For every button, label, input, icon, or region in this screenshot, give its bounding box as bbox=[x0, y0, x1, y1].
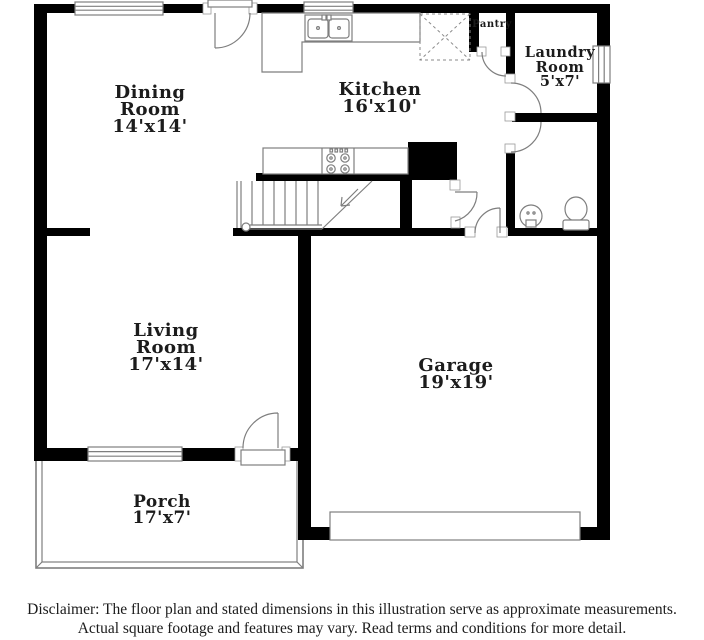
front-door-threshold bbox=[208, 0, 252, 7]
garage-entry-door bbox=[475, 208, 500, 233]
dining-room-label: Dining Room 14'x14' bbox=[112, 82, 187, 137]
svg-text:19'x19': 19'x19' bbox=[418, 372, 493, 393]
dining-window bbox=[75, 2, 163, 15]
kitchen-island-stove bbox=[263, 148, 408, 174]
svg-text:5'x7': 5'x7' bbox=[540, 73, 580, 90]
svg-text:17'x7': 17'x7' bbox=[132, 508, 191, 528]
utility-chase-block bbox=[408, 142, 457, 180]
disclaimer-text: Disclaimer: The floor plan and stated di… bbox=[0, 600, 704, 638]
stairs bbox=[237, 181, 372, 231]
living-window bbox=[88, 447, 182, 461]
garage-label: Garage 19'x19' bbox=[418, 355, 493, 393]
svg-text:16'x10': 16'x10' bbox=[342, 96, 417, 117]
living-room-label: Living Room 17'x14' bbox=[128, 320, 203, 375]
toilet bbox=[563, 197, 589, 230]
kitchen-sink bbox=[305, 15, 352, 41]
living-porch-door bbox=[243, 413, 278, 448]
svg-text:Pantry: Pantry bbox=[472, 19, 512, 30]
garage-door bbox=[330, 512, 580, 540]
disclaimer-line-2: Actual square footage and features may v… bbox=[0, 619, 704, 638]
laundry-room-label: Laundry Room 5'x7' bbox=[525, 44, 595, 90]
disclaimer-line-1: Disclaimer: The floor plan and stated di… bbox=[0, 600, 704, 619]
bathroom-door bbox=[511, 122, 541, 152]
floor-plan-page: Dining Room 14'x14' Kitchen 16'x10' Laun… bbox=[0, 0, 704, 640]
bathroom-sink bbox=[520, 205, 542, 227]
kitchen-label: Kitchen 16'x10' bbox=[339, 79, 422, 117]
pantry-label: Pantry bbox=[472, 19, 512, 30]
entry-door bbox=[215, 13, 250, 48]
svg-text:17'x14': 17'x14' bbox=[128, 354, 203, 375]
laundry-door bbox=[511, 83, 541, 113]
porch-label: Porch 17'x7' bbox=[132, 492, 191, 528]
porch-door-threshold bbox=[241, 450, 285, 465]
dashed-appliance-space bbox=[420, 14, 470, 60]
laundry-window bbox=[593, 46, 610, 83]
svg-text:14'x14': 14'x14' bbox=[112, 116, 187, 137]
floor-plan-drawing: Dining Room 14'x14' Kitchen 16'x10' Laun… bbox=[0, 0, 704, 596]
